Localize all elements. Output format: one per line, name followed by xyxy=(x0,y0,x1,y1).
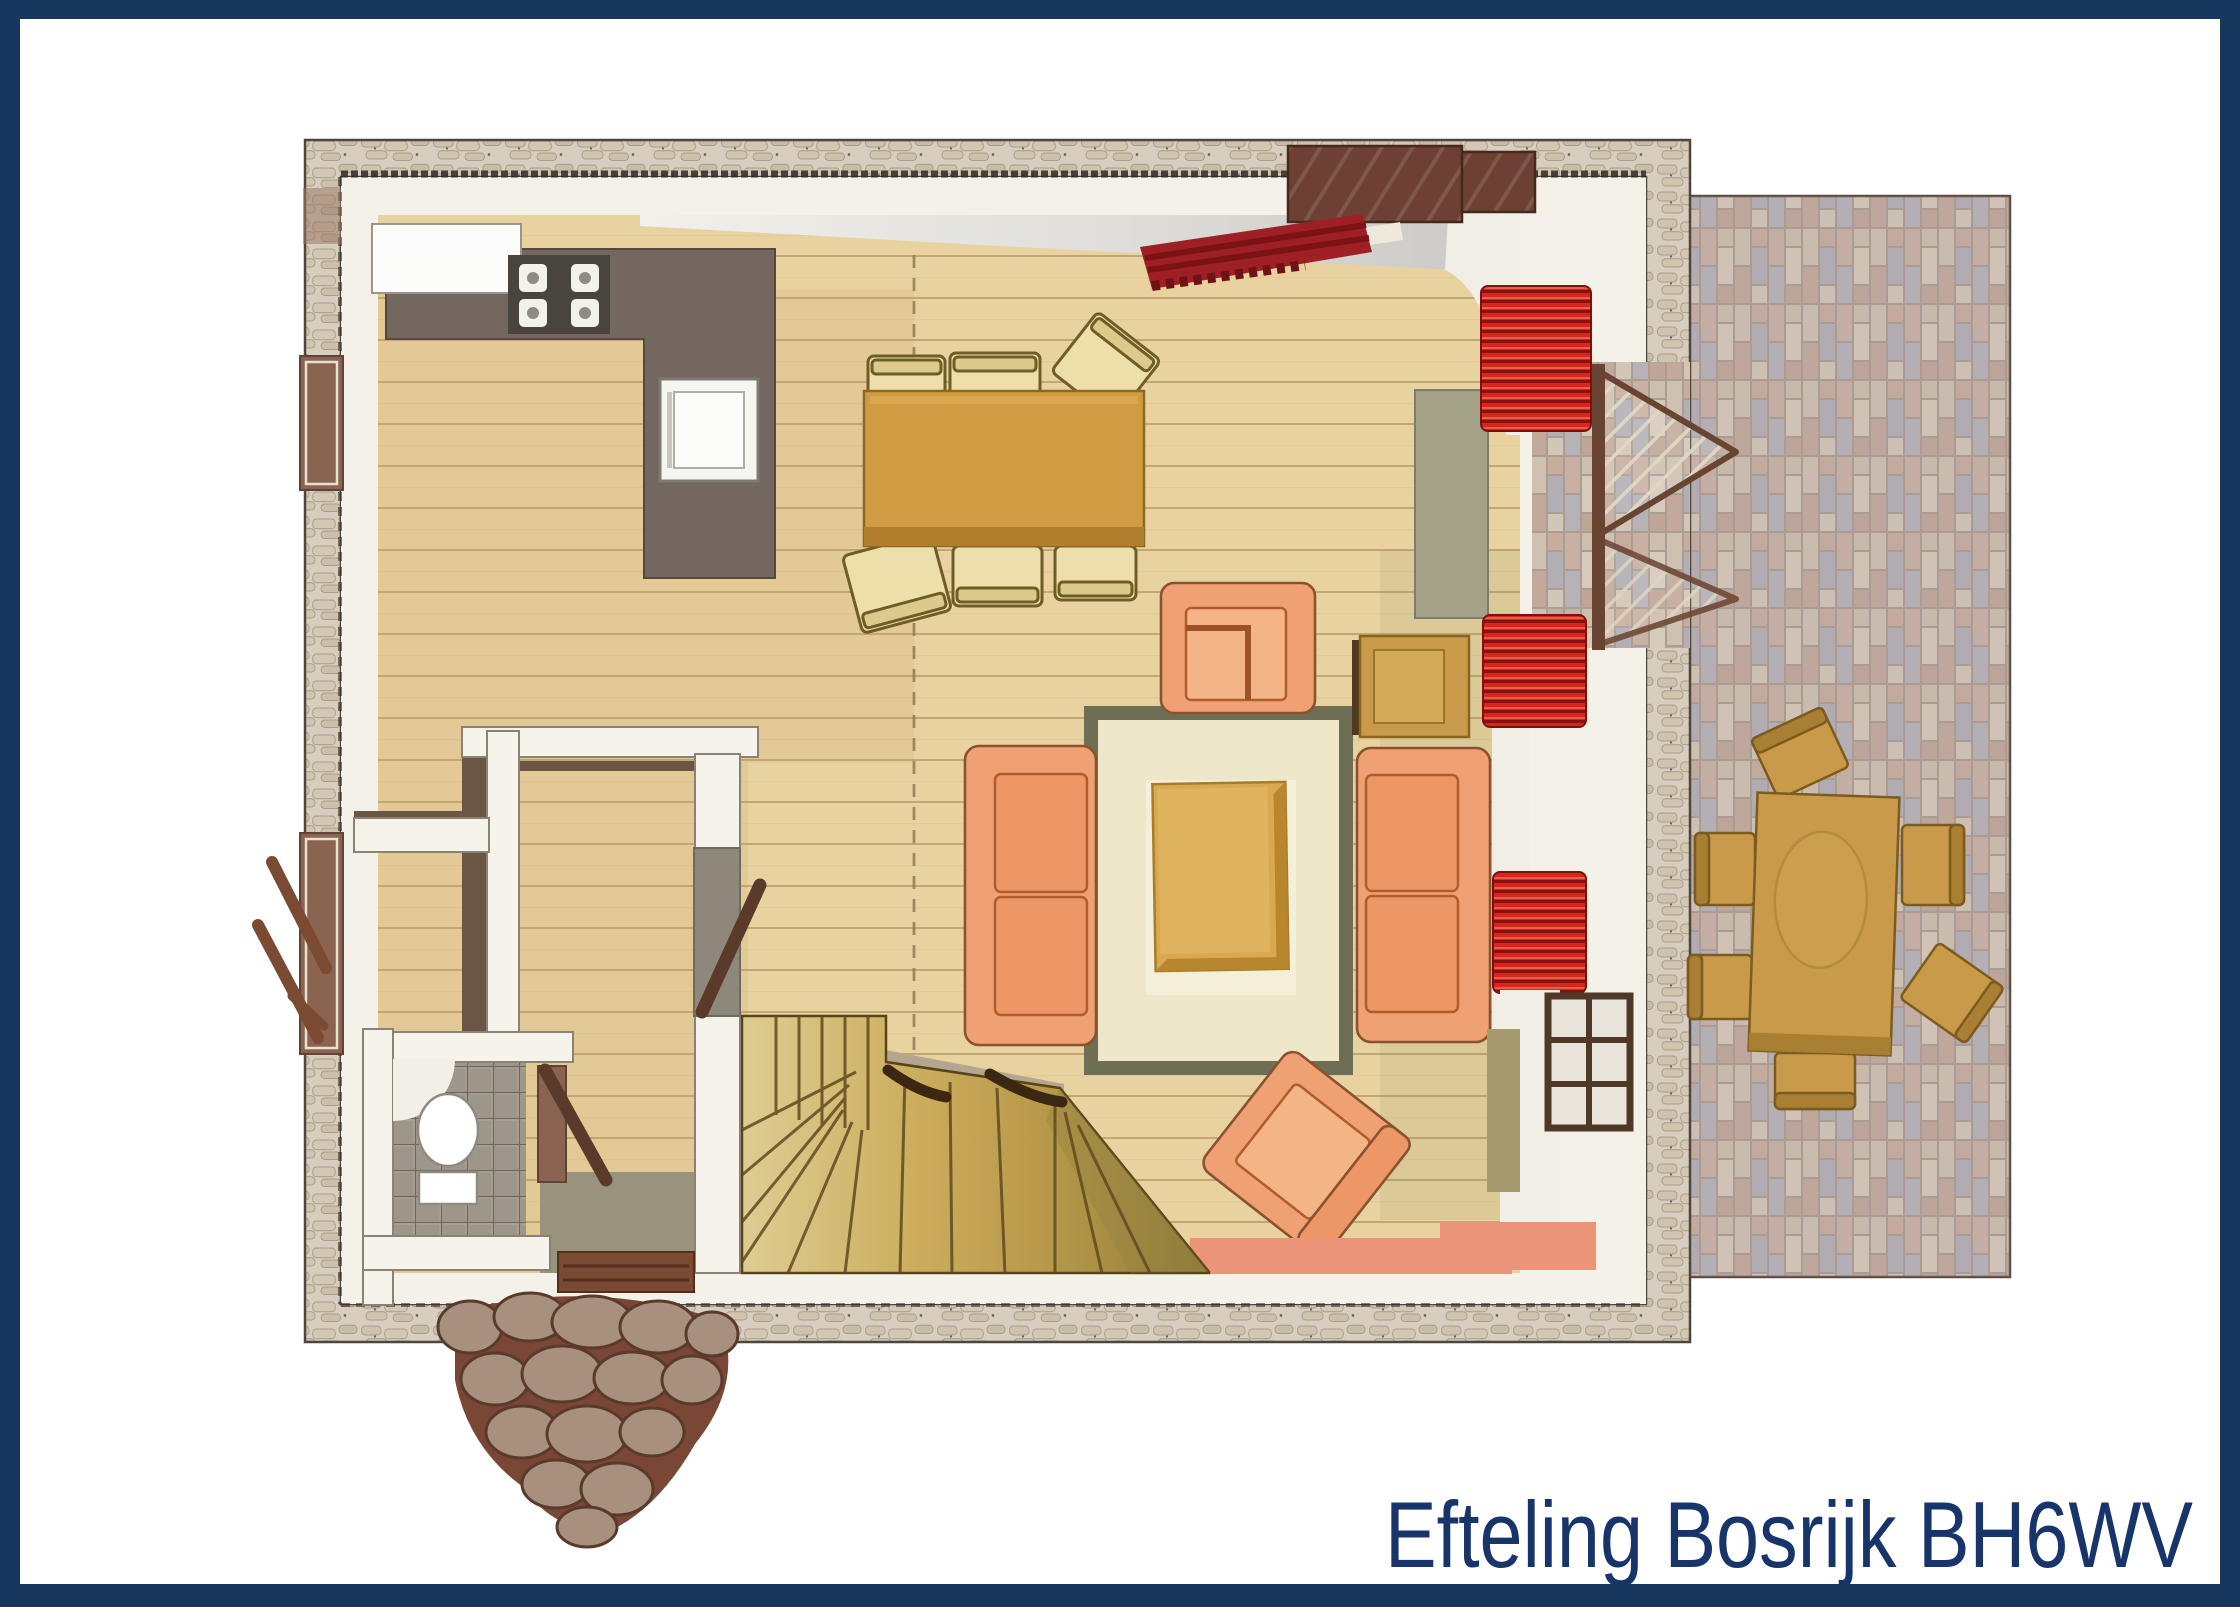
svg-text:Efteling Bosrijk BH6WV: Efteling Bosrijk BH6WV xyxy=(1385,1482,2193,1587)
